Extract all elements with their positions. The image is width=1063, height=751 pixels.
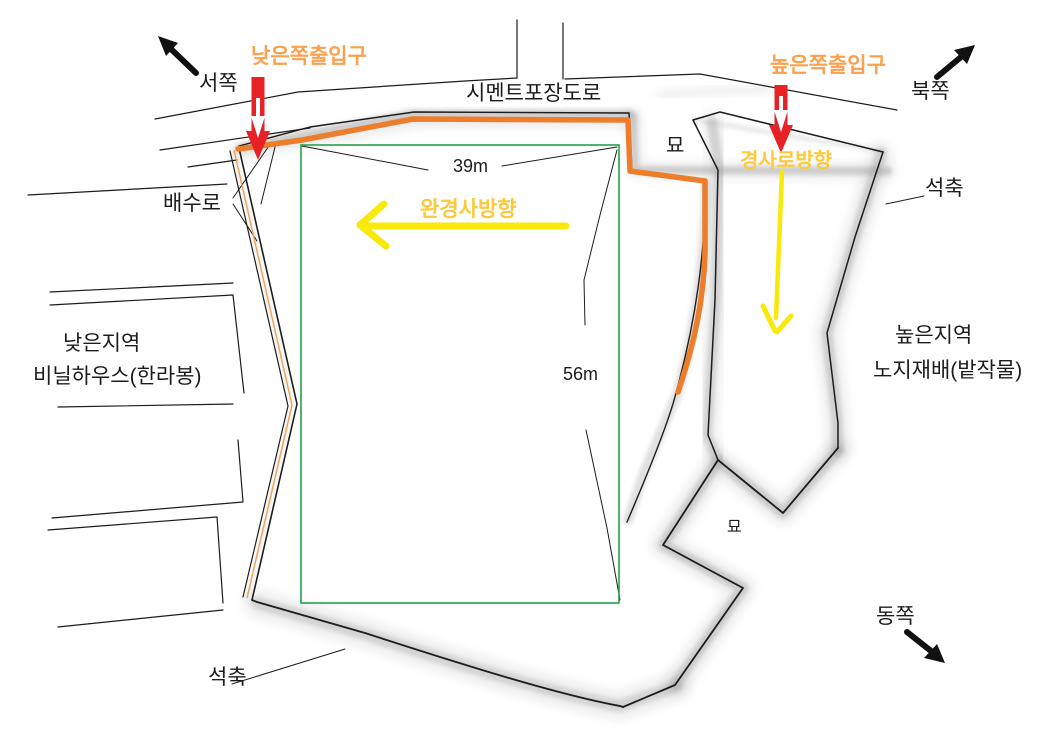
grave-middle-label: 묘 (727, 519, 742, 537)
gentle-slope-arrow-head-upper (360, 204, 384, 225)
dim-39m-right-line (502, 147, 617, 166)
greenhouse-row-line-4 (58, 404, 233, 407)
dim-56m-upper-line (584, 150, 617, 325)
greenhouse-row-line-6 (48, 517, 223, 603)
ramp-direction-label: 경사로방향 (740, 150, 832, 172)
gentle-slope-direction-label: 완경사방향 (420, 198, 517, 221)
greenhouse-row-line-2 (50, 283, 233, 292)
high-area-label-line2: 노지재배(밭작물) (873, 359, 1022, 382)
dim-39m-left-line (302, 146, 428, 170)
high-area-label-line1: 높은지역 (895, 324, 972, 347)
north-compass-label: 북쪽 (911, 80, 950, 103)
road-inner-edge (188, 160, 237, 167)
stone-wall-bottom-label: 석축 (208, 666, 247, 689)
west-compass-label: 서쪽 (199, 72, 238, 95)
shadow-path-curve (628, 184, 706, 520)
west-arrow-shaft (172, 50, 196, 73)
red-arrow-high-entrance (769, 85, 793, 153)
yellow-arrow-ramp-direction (763, 172, 791, 332)
site-sketch-canvas: 서쪽 낮은쪽출입구 시멘트포장도로 높은쪽출입구 북쪽 묘 경사로방향 석축 배… (0, 0, 1063, 751)
cement-road-label: 시멘트포장도로 (466, 82, 601, 105)
low-entrance-label: 낮은쪽출입구 (251, 45, 367, 68)
ramp-arrow-head-right (777, 316, 791, 332)
low-area-label-line1: 낮은지역 (63, 332, 140, 355)
drainage-label: 배수로 (163, 192, 221, 215)
greenhouse-row-line-7 (58, 610, 223, 627)
grave-top-label: 묘 (666, 135, 684, 157)
dimension-56m-label: 56m (563, 365, 598, 385)
greenhouse-row-line-5 (52, 440, 243, 518)
shadow-road-right (660, 88, 770, 95)
drain-outer-line (230, 151, 288, 597)
stone-wall-bottom-pointer-line (232, 649, 345, 684)
ramp-arrow-head-left (763, 306, 775, 331)
east-compass-label: 동쪽 (876, 605, 915, 628)
low-area-label-line2: 비닐하우스(한라봉) (33, 365, 202, 388)
north-arrow-shaft (937, 57, 961, 77)
dim-56m-lower-line (586, 430, 620, 600)
east-arrow-shaft (907, 632, 931, 651)
high-entrance-label: 높은쪽출입구 (770, 54, 886, 77)
stone-wall-shadows (234, 88, 888, 706)
stone-wall-right-label: 석축 (925, 177, 964, 200)
stone-wall-right-pointer-line (886, 196, 924, 204)
ramp-arrow-shaft (776, 172, 782, 318)
dimension-39m-label: 39m (453, 157, 488, 177)
